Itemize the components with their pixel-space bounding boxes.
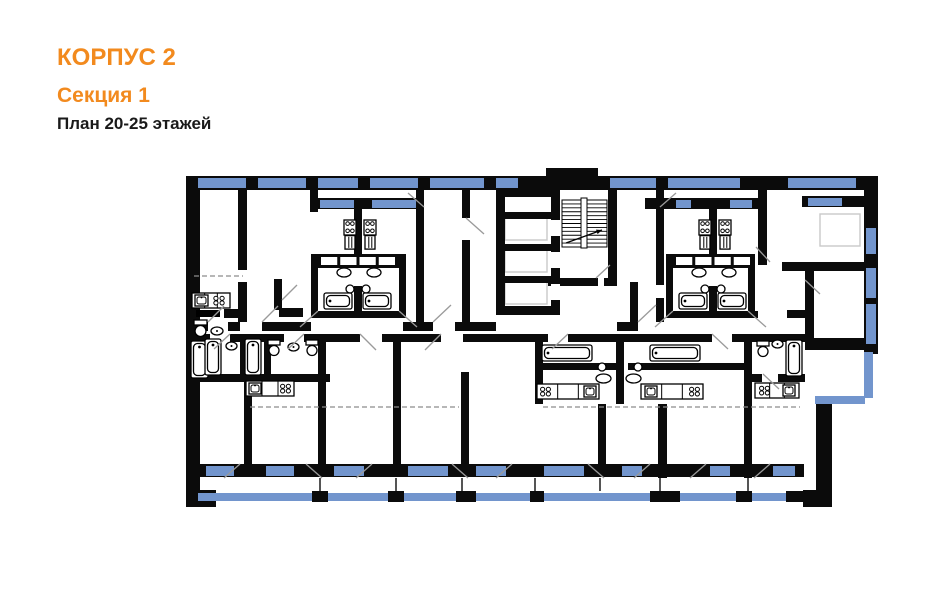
elevator-car-outline (505, 218, 547, 240)
fixture-part (286, 384, 290, 388)
fixture-part (252, 344, 255, 347)
fixture-oval-icon (367, 268, 381, 277)
fixture-tubh-icon (679, 293, 707, 309)
fixture-part (692, 268, 706, 277)
fixture-part (329, 300, 332, 303)
window-segment (544, 466, 584, 476)
fixture-part (368, 300, 371, 303)
fixture-part (281, 389, 285, 393)
fixture-part (765, 391, 769, 395)
fixture-part (650, 387, 652, 389)
wall (186, 250, 195, 260)
elevator-car-outline (505, 250, 547, 272)
wall (279, 308, 303, 317)
window-segment (676, 200, 691, 208)
fixture-part (293, 346, 295, 348)
fixture-part (345, 236, 355, 250)
window-segment (730, 200, 752, 208)
fixture-part (722, 268, 736, 277)
fixture-part (720, 236, 730, 250)
fixture-part (701, 285, 709, 293)
wall (709, 286, 717, 311)
stair-stringer (581, 198, 587, 248)
fixture-part (346, 285, 354, 293)
wall (462, 240, 470, 322)
wall (311, 254, 318, 318)
window-segment (430, 178, 484, 188)
wall (546, 168, 598, 177)
fixture-part (367, 268, 381, 277)
door-swing (712, 334, 728, 349)
window-segment (788, 178, 856, 188)
fixture-part (695, 392, 699, 396)
fixture-oval-icon (692, 268, 706, 277)
door-swing (360, 334, 376, 350)
fixture-part (269, 346, 279, 356)
fixture-circle-icon (634, 363, 642, 371)
fixture-basin-icon (211, 327, 223, 335)
fixture-part (777, 343, 779, 345)
fixture-part (365, 236, 375, 250)
rail-post (456, 491, 476, 502)
fixture-wc-icon (194, 320, 207, 337)
rail-post (650, 491, 680, 502)
fixture-part (596, 374, 611, 383)
rail-post (312, 491, 328, 502)
wall (399, 254, 406, 318)
fixture-circle-icon (598, 363, 606, 371)
window-segment (476, 466, 506, 476)
fixture-stove-icon (699, 220, 711, 249)
fixture-tubh-icon (363, 293, 391, 309)
window-segment (198, 178, 246, 188)
floor-plan-drawing (0, 0, 941, 600)
wall (496, 306, 560, 315)
fixture-part (760, 391, 764, 395)
fixture-wc-icon (757, 341, 769, 357)
fixture-part (216, 330, 218, 332)
balcony-rail (198, 493, 803, 501)
window-segment (370, 178, 418, 188)
fixture-basin-icon (226, 342, 237, 350)
wall (630, 282, 638, 324)
fixture-sinkbox-icon (783, 385, 795, 396)
fixture-tubh-icon (718, 293, 746, 309)
fixture-circle-icon (362, 285, 370, 293)
window-segment (808, 198, 842, 206)
fixture-part (690, 392, 694, 396)
elevator-door-gap (551, 220, 560, 236)
fixture-part (281, 384, 285, 388)
window-segment (408, 466, 448, 476)
fixture-part (541, 387, 545, 391)
fixture-part (690, 387, 694, 391)
rail-post (786, 491, 804, 502)
elevator-door-gap (551, 284, 560, 300)
fixture-tubv-icon (786, 340, 802, 376)
fixture-part (340, 257, 356, 265)
fixture-part (198, 346, 201, 349)
fixture-part (379, 257, 395, 265)
fixture-part (362, 285, 370, 293)
wall (461, 372, 469, 464)
fixture-tubh-icon (542, 345, 592, 361)
fixture-part (684, 300, 687, 303)
wall (669, 311, 758, 318)
window-segment (496, 178, 518, 188)
window-segment (866, 228, 876, 254)
fixture-part (734, 257, 750, 265)
fixture-part (307, 346, 317, 356)
wall (617, 322, 638, 331)
elevator-car-outline (820, 214, 860, 246)
fixture-part (700, 236, 710, 250)
door-swing (262, 306, 278, 322)
door-swing (466, 218, 484, 234)
wall (463, 334, 535, 342)
door-swing (433, 305, 451, 322)
wall (805, 262, 814, 342)
fixture-tubh-icon (324, 293, 352, 309)
window-segment (318, 178, 358, 188)
elevator-car-outline (505, 282, 547, 304)
rail-post (388, 491, 404, 502)
wall (455, 322, 496, 331)
fixture-part (546, 387, 550, 391)
fixture-tubh-icon (650, 345, 700, 361)
window-segment (668, 178, 740, 188)
floor-plan-page: КОРПУС 2 Секция 1 План 20-25 этажей (0, 0, 941, 600)
fixture-tubv-icon (245, 339, 261, 375)
wall (330, 334, 360, 342)
fixture-part (788, 386, 790, 388)
fixture-stove-icon (344, 220, 356, 249)
rail-post (530, 491, 544, 502)
window-segment (710, 466, 730, 476)
window-segment (866, 268, 876, 298)
wall (318, 342, 326, 464)
door-swing (638, 305, 656, 322)
window-segment (258, 178, 306, 188)
fixture-part (589, 387, 591, 389)
fixture-oval-icon (596, 374, 611, 383)
fixture-part (220, 296, 224, 300)
fixture-part (723, 300, 726, 303)
wall (354, 286, 362, 311)
fixture-part (634, 363, 642, 371)
wall (666, 254, 673, 318)
wall (656, 298, 664, 322)
fixture-stove-icon (364, 220, 376, 249)
fixture-circle-icon (717, 285, 725, 293)
fixture-part (337, 268, 351, 277)
wall (496, 188, 505, 315)
fixture-part (306, 340, 318, 345)
fixture-part (201, 296, 203, 298)
fixture-part (760, 386, 764, 390)
fixture-part (757, 341, 769, 346)
door-swing (596, 265, 610, 278)
fixture-part (195, 326, 206, 337)
wall (568, 334, 712, 342)
wall (732, 334, 745, 342)
wall (314, 311, 403, 318)
wall (752, 374, 762, 382)
balcony-rail (864, 352, 873, 398)
fixture-part (220, 301, 224, 305)
fixture-part (793, 345, 796, 348)
window-segment (622, 466, 642, 476)
window-segment (320, 200, 354, 208)
fixture-part (695, 257, 711, 265)
fixture-part (254, 384, 256, 386)
fixture-part (676, 257, 692, 265)
fixture-part (655, 352, 658, 355)
window-segment (266, 466, 294, 476)
window-segment (866, 304, 876, 344)
wall (224, 309, 243, 318)
fixture-oval-icon (722, 268, 736, 277)
door-swing (282, 285, 297, 300)
wall (462, 190, 470, 218)
fixture-part (695, 387, 699, 391)
fixture-part (268, 340, 280, 345)
balcony-rail (815, 396, 865, 404)
fixture-circle-icon (701, 285, 709, 293)
wall (403, 322, 433, 331)
wall (551, 176, 560, 190)
rail-post (736, 491, 752, 502)
wall (228, 322, 240, 331)
fixture-part (194, 320, 207, 325)
fixture-part (541, 392, 545, 396)
wall (787, 310, 805, 318)
fixture-sinkbox-icon (249, 383, 261, 394)
fixture-wc-icon (268, 340, 280, 356)
wall (501, 276, 551, 283)
floor-plan-svg (0, 0, 941, 600)
fixture-part (598, 363, 606, 371)
wall (658, 404, 667, 478)
wall (274, 279, 282, 310)
wall (535, 363, 620, 370)
fixture-part (214, 296, 218, 300)
fixture-oval-icon (626, 374, 641, 383)
wall (744, 404, 752, 478)
wall (608, 176, 617, 285)
wall (393, 334, 401, 464)
window-segment (773, 466, 795, 476)
wall (744, 334, 752, 404)
fixture-sinkbox-icon (645, 386, 657, 397)
fixture-sinkbox-icon (584, 386, 596, 397)
wall (782, 262, 878, 271)
fixture-circle-icon (346, 285, 354, 293)
fixture-part (545, 348, 590, 359)
wall (496, 188, 560, 197)
fixture-part (653, 348, 698, 359)
wall (416, 212, 424, 322)
fixture-part (758, 347, 768, 357)
wall (501, 244, 551, 251)
fixture-part (765, 386, 769, 390)
fixture-sinkbox-icon (195, 295, 208, 306)
fixture-part (717, 285, 725, 293)
fixture-part (321, 257, 337, 265)
fixture-part (214, 301, 218, 305)
elevator-door-gap (551, 252, 560, 268)
fixture-part (360, 257, 376, 265)
window-segment (372, 200, 416, 208)
fixture-part (212, 344, 215, 347)
wall (598, 404, 606, 464)
fixture-part (546, 392, 550, 396)
wall (238, 190, 247, 270)
window-segment (206, 466, 234, 476)
wall (604, 278, 617, 286)
fixture-oval-icon (337, 268, 351, 277)
wall (501, 212, 551, 219)
wall (628, 363, 745, 370)
fixture-part (286, 389, 290, 393)
fixture-basin-icon (772, 340, 783, 348)
window-segment (610, 178, 656, 188)
fixture-part (547, 352, 550, 355)
fixture-part (231, 345, 233, 347)
wall (803, 490, 831, 507)
fixture-part (626, 374, 641, 383)
fixture-stove-icon (719, 220, 731, 249)
fixture-wc-icon (306, 340, 318, 356)
fixture-part (715, 257, 731, 265)
